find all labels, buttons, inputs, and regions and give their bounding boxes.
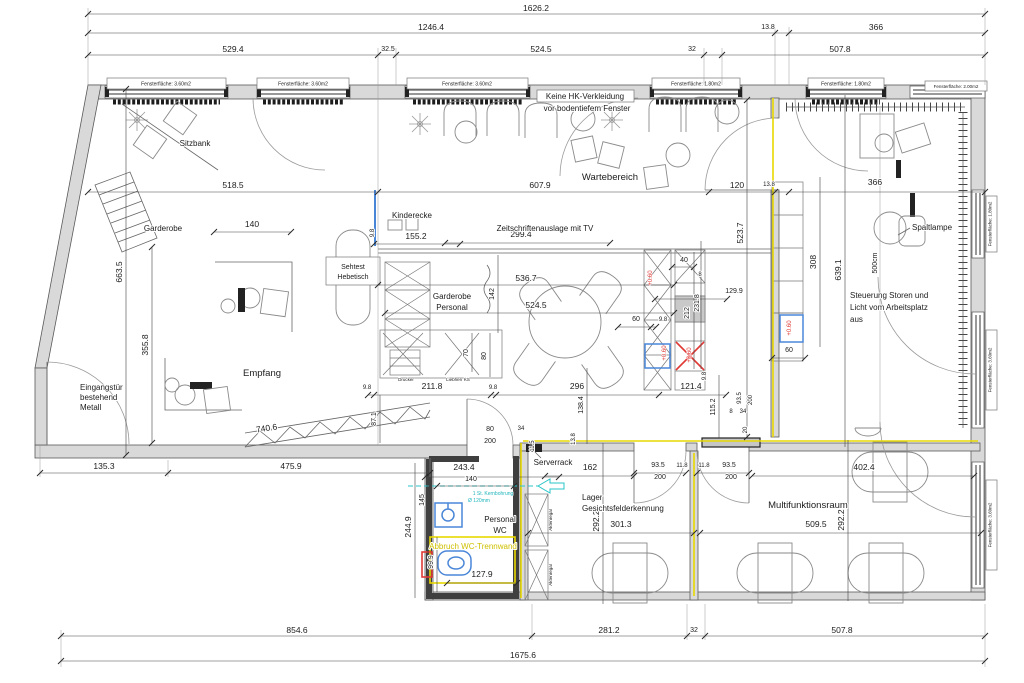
dim: 13.8 <box>571 433 577 445</box>
dim: 32 <box>688 46 696 53</box>
room-label-spaltlampe: Spaltlampe <box>912 223 953 232</box>
dim: 121.4 <box>680 381 702 391</box>
window-label-top3: Fensterfläche: 3.60m2 <box>442 82 492 88</box>
room-label-empfang: Empfang <box>243 368 281 379</box>
dim: 292.2 <box>591 510 601 532</box>
note-hk-2: vor bodentiefem Fenster <box>544 104 631 113</box>
dim: 34 <box>518 426 525 432</box>
dim: 13.8 <box>763 182 775 188</box>
dim: 523.7 <box>735 222 745 244</box>
core-drill-arrow <box>538 479 564 493</box>
dim: 663.5 <box>114 261 124 283</box>
dim: 509.5 <box>805 519 827 529</box>
dim: 9.8 <box>659 317 668 323</box>
dim: 60 <box>632 316 640 323</box>
window-label-top5: Fensterfläche: 1.80m2 <box>821 82 871 88</box>
dim: 120 <box>730 180 744 190</box>
dim: 507.8 <box>831 625 853 635</box>
dim: 93.5 <box>737 392 743 404</box>
note-kernbohrung-2: Ø 120mm <box>468 498 490 504</box>
dim: 99.9 <box>428 555 435 569</box>
dim: 155.2 <box>405 231 427 241</box>
room-label-multifunktionsraum: Multifunktionsraum <box>768 500 848 511</box>
label-aktenregal-2: Aktenregal <box>548 564 553 586</box>
dim: 138.4 <box>578 396 585 414</box>
dim: 1675.6 <box>510 650 536 660</box>
dim: 518.5 <box>222 180 244 190</box>
dim: 93.5 <box>722 462 736 469</box>
elevation-mark-3: +0.60 <box>687 347 693 363</box>
dim: 70 <box>463 349 470 357</box>
dim: 281.2 <box>598 625 620 635</box>
dim: 11.8 <box>698 463 710 469</box>
note-zeitschriften: Zeitschriftenauslage mit TV <box>497 224 594 233</box>
label-sehtest: Sehtest <box>341 264 365 271</box>
label-500cm: 500cm <box>872 252 879 273</box>
dim: 32.5 <box>381 46 395 53</box>
room-label-garderobe-personal: Garderobe <box>433 292 472 301</box>
dim: 93.5 <box>651 462 665 469</box>
dim: 87.1 <box>371 412 378 426</box>
dim: 80 <box>481 352 488 360</box>
elevation-mark-1: +0.60 <box>648 270 654 286</box>
dim: 607.9 <box>529 180 551 190</box>
room-label-garderobe-personal-2: Personal <box>436 303 468 312</box>
dim: 296 <box>570 381 584 391</box>
dim: 212 <box>684 307 691 319</box>
room-label-serverrack: Serverrack <box>534 458 574 467</box>
sitzbank-bench <box>122 104 218 170</box>
dim: 475.9 <box>280 461 302 471</box>
window-label-top2: Fensterfläche: 3.60m2 <box>278 82 328 88</box>
dim: 135.3 <box>93 461 115 471</box>
label-hebetisch: Hebetisch <box>337 274 368 281</box>
note-eingang-3: Metall <box>80 403 102 412</box>
dim: 9.8 <box>370 228 376 237</box>
note-eingang-1: Eingangstür <box>80 383 123 392</box>
dim: 301.3 <box>610 519 632 529</box>
note-kernbohrung-1: 1 St. Kernbohrung <box>473 491 514 497</box>
window-label-right2: Fensterfläche: 3.60m2 <box>988 347 993 392</box>
label-aktenregal-1: Aktenregal <box>548 509 553 531</box>
dim: 34 <box>740 409 747 415</box>
dim: 243.4 <box>453 462 475 472</box>
sink <box>855 428 881 436</box>
dim: 32 <box>690 627 698 634</box>
room-label-kinderecke: Kinderecke <box>392 211 433 220</box>
note-abbruch: Abbruch WC-Trennwand <box>429 542 517 551</box>
dim: 80 <box>486 426 494 433</box>
dim: 231.8 <box>694 294 701 312</box>
dim: 40 <box>680 257 688 264</box>
window-label-right3: Fensterfläche: 3.60m2 <box>988 502 993 547</box>
dim: 200 <box>484 438 496 445</box>
dim: 162 <box>583 462 597 472</box>
label-drucker: Drucker <box>398 377 414 382</box>
dim: 536.7 <box>515 273 537 283</box>
dim: 8 <box>698 272 702 278</box>
dim: 140 <box>245 219 259 229</box>
dim: 244.9 <box>403 516 413 538</box>
dim: 200 <box>725 474 737 481</box>
elevation-mark-4: +0.60 <box>787 320 793 336</box>
floor-plan: Fensterfläche: 3.60m2 Fensterfläche: 3.6… <box>0 0 1024 683</box>
room-label-lager-2: Gesichtsfelderkennung <box>582 504 664 513</box>
dim: 366 <box>869 22 883 32</box>
room-label-lager: Lager <box>582 493 603 502</box>
dim: 200 <box>654 474 666 481</box>
dim: 20 <box>743 426 749 433</box>
dim: 200 <box>748 394 754 405</box>
note-steuerung-3: aus <box>850 315 863 324</box>
elevation-mark-2: +0.60 <box>662 345 668 361</box>
dim: 145 <box>419 494 426 506</box>
room-label-personal-wc-2: WC <box>493 526 507 535</box>
note-steuerung-2: Licht vom Arbeitsplatz <box>850 303 928 312</box>
room-label-wartebereich: Wartebereich <box>582 172 638 183</box>
dim: 524.5 <box>530 44 552 54</box>
dim: 308 <box>808 255 818 269</box>
floor-plan-canvas: Fensterfläche: 3.60m2 Fensterfläche: 3.6… <box>0 0 1024 683</box>
dim: 292.2 <box>836 509 846 531</box>
window-label-top4: Fensterfläche: 1.80m2 <box>671 82 721 88</box>
dim: 13.8 <box>761 24 775 31</box>
window-label-top1: Fensterfläche: 3.60m2 <box>141 82 191 88</box>
dim: 115.2 <box>710 398 717 415</box>
dim: 366 <box>868 177 882 187</box>
dim: 1246.4 <box>418 22 444 32</box>
reception-counter-1 <box>215 262 292 332</box>
dim: 9.8 <box>489 385 498 391</box>
dim: 127.9 <box>471 569 493 579</box>
window-label-right1: Fensterfläche: 1.80m2 <box>988 201 993 246</box>
room-label-sitzbank: Sitzbank <box>180 139 212 148</box>
note-eingang-2: bestehend <box>80 393 117 402</box>
dim: 142 <box>489 288 496 300</box>
dim: 524.5 <box>525 300 547 310</box>
dim: 9.8 <box>363 385 372 391</box>
dim: 1626.2 <box>523 3 549 13</box>
washbasin <box>435 503 462 527</box>
dim: 11.8 <box>676 463 688 469</box>
dim: 8 <box>729 409 733 415</box>
dim: 402.4 <box>853 462 875 472</box>
dim: 854.6 <box>286 625 308 635</box>
dim: 9.8 <box>702 371 708 380</box>
dim: 529.4 <box>222 44 244 54</box>
note-steuerung-1: Steuerung Storen und <box>850 291 928 300</box>
dim: 507.8 <box>829 44 851 54</box>
dim: 639.1 <box>833 259 843 281</box>
label-liebherr: Liebherr KS <box>446 377 470 382</box>
dim: 355.8 <box>140 334 150 356</box>
room-label-garderobe: Garderobe <box>144 224 183 233</box>
dim: 11.5 <box>530 440 536 452</box>
room-label-personal-wc: Personal <box>484 515 516 524</box>
lager-racks <box>525 494 548 600</box>
dim: 60 <box>785 347 793 354</box>
dim: 129.9 <box>725 288 743 295</box>
dim: 740.6 <box>255 421 278 434</box>
round-table <box>529 286 601 358</box>
note-hk-1: Keine HK-Verkleidung <box>546 92 624 101</box>
toilet <box>438 551 471 575</box>
window-label-corner: Fensterfläche: 2.00m2 <box>934 84 979 89</box>
dim: 140 <box>465 476 477 483</box>
dim: 211.8 <box>422 381 443 391</box>
